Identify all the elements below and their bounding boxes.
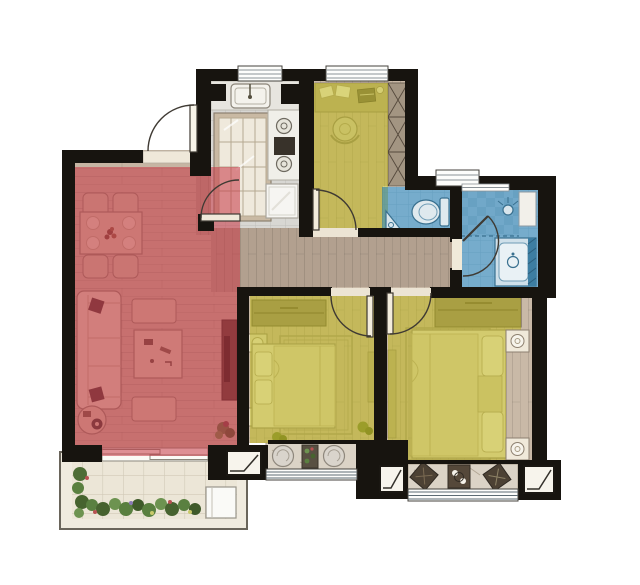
gas-stove: [268, 110, 300, 180]
overlay-bedroom2: [250, 292, 374, 443]
overlay-master: [388, 292, 521, 463]
overlay-living-dining: [75, 167, 240, 456]
bath-niche: [519, 192, 536, 226]
study-window: [326, 66, 388, 81]
kitchen-window: [238, 66, 282, 81]
entry-threshold: [143, 151, 196, 163]
stool: [324, 446, 345, 467]
vanity-sink: [495, 238, 536, 286]
washing-machine: [206, 487, 236, 518]
corner-casement-window: [524, 466, 554, 493]
bedroom2-bay-glazing: [266, 469, 357, 480]
planter-box: [302, 445, 318, 468]
fridge: [266, 184, 298, 218]
floor-plan-canvas: [0, 0, 640, 585]
bay-window-seat-master: [408, 462, 518, 491]
corner-casement-window: [227, 451, 261, 475]
kitchen-sink: [231, 84, 270, 108]
master-bay-glazing: [408, 489, 518, 501]
corner-casement-window: [380, 466, 404, 492]
entry-door: [148, 105, 197, 152]
bathroom-window-sill: [462, 184, 509, 191]
bay-table: [448, 465, 470, 488]
toilet-bowl: [412, 198, 449, 226]
bay-window-seat-bedroom2: [266, 443, 357, 469]
stool: [273, 446, 294, 467]
